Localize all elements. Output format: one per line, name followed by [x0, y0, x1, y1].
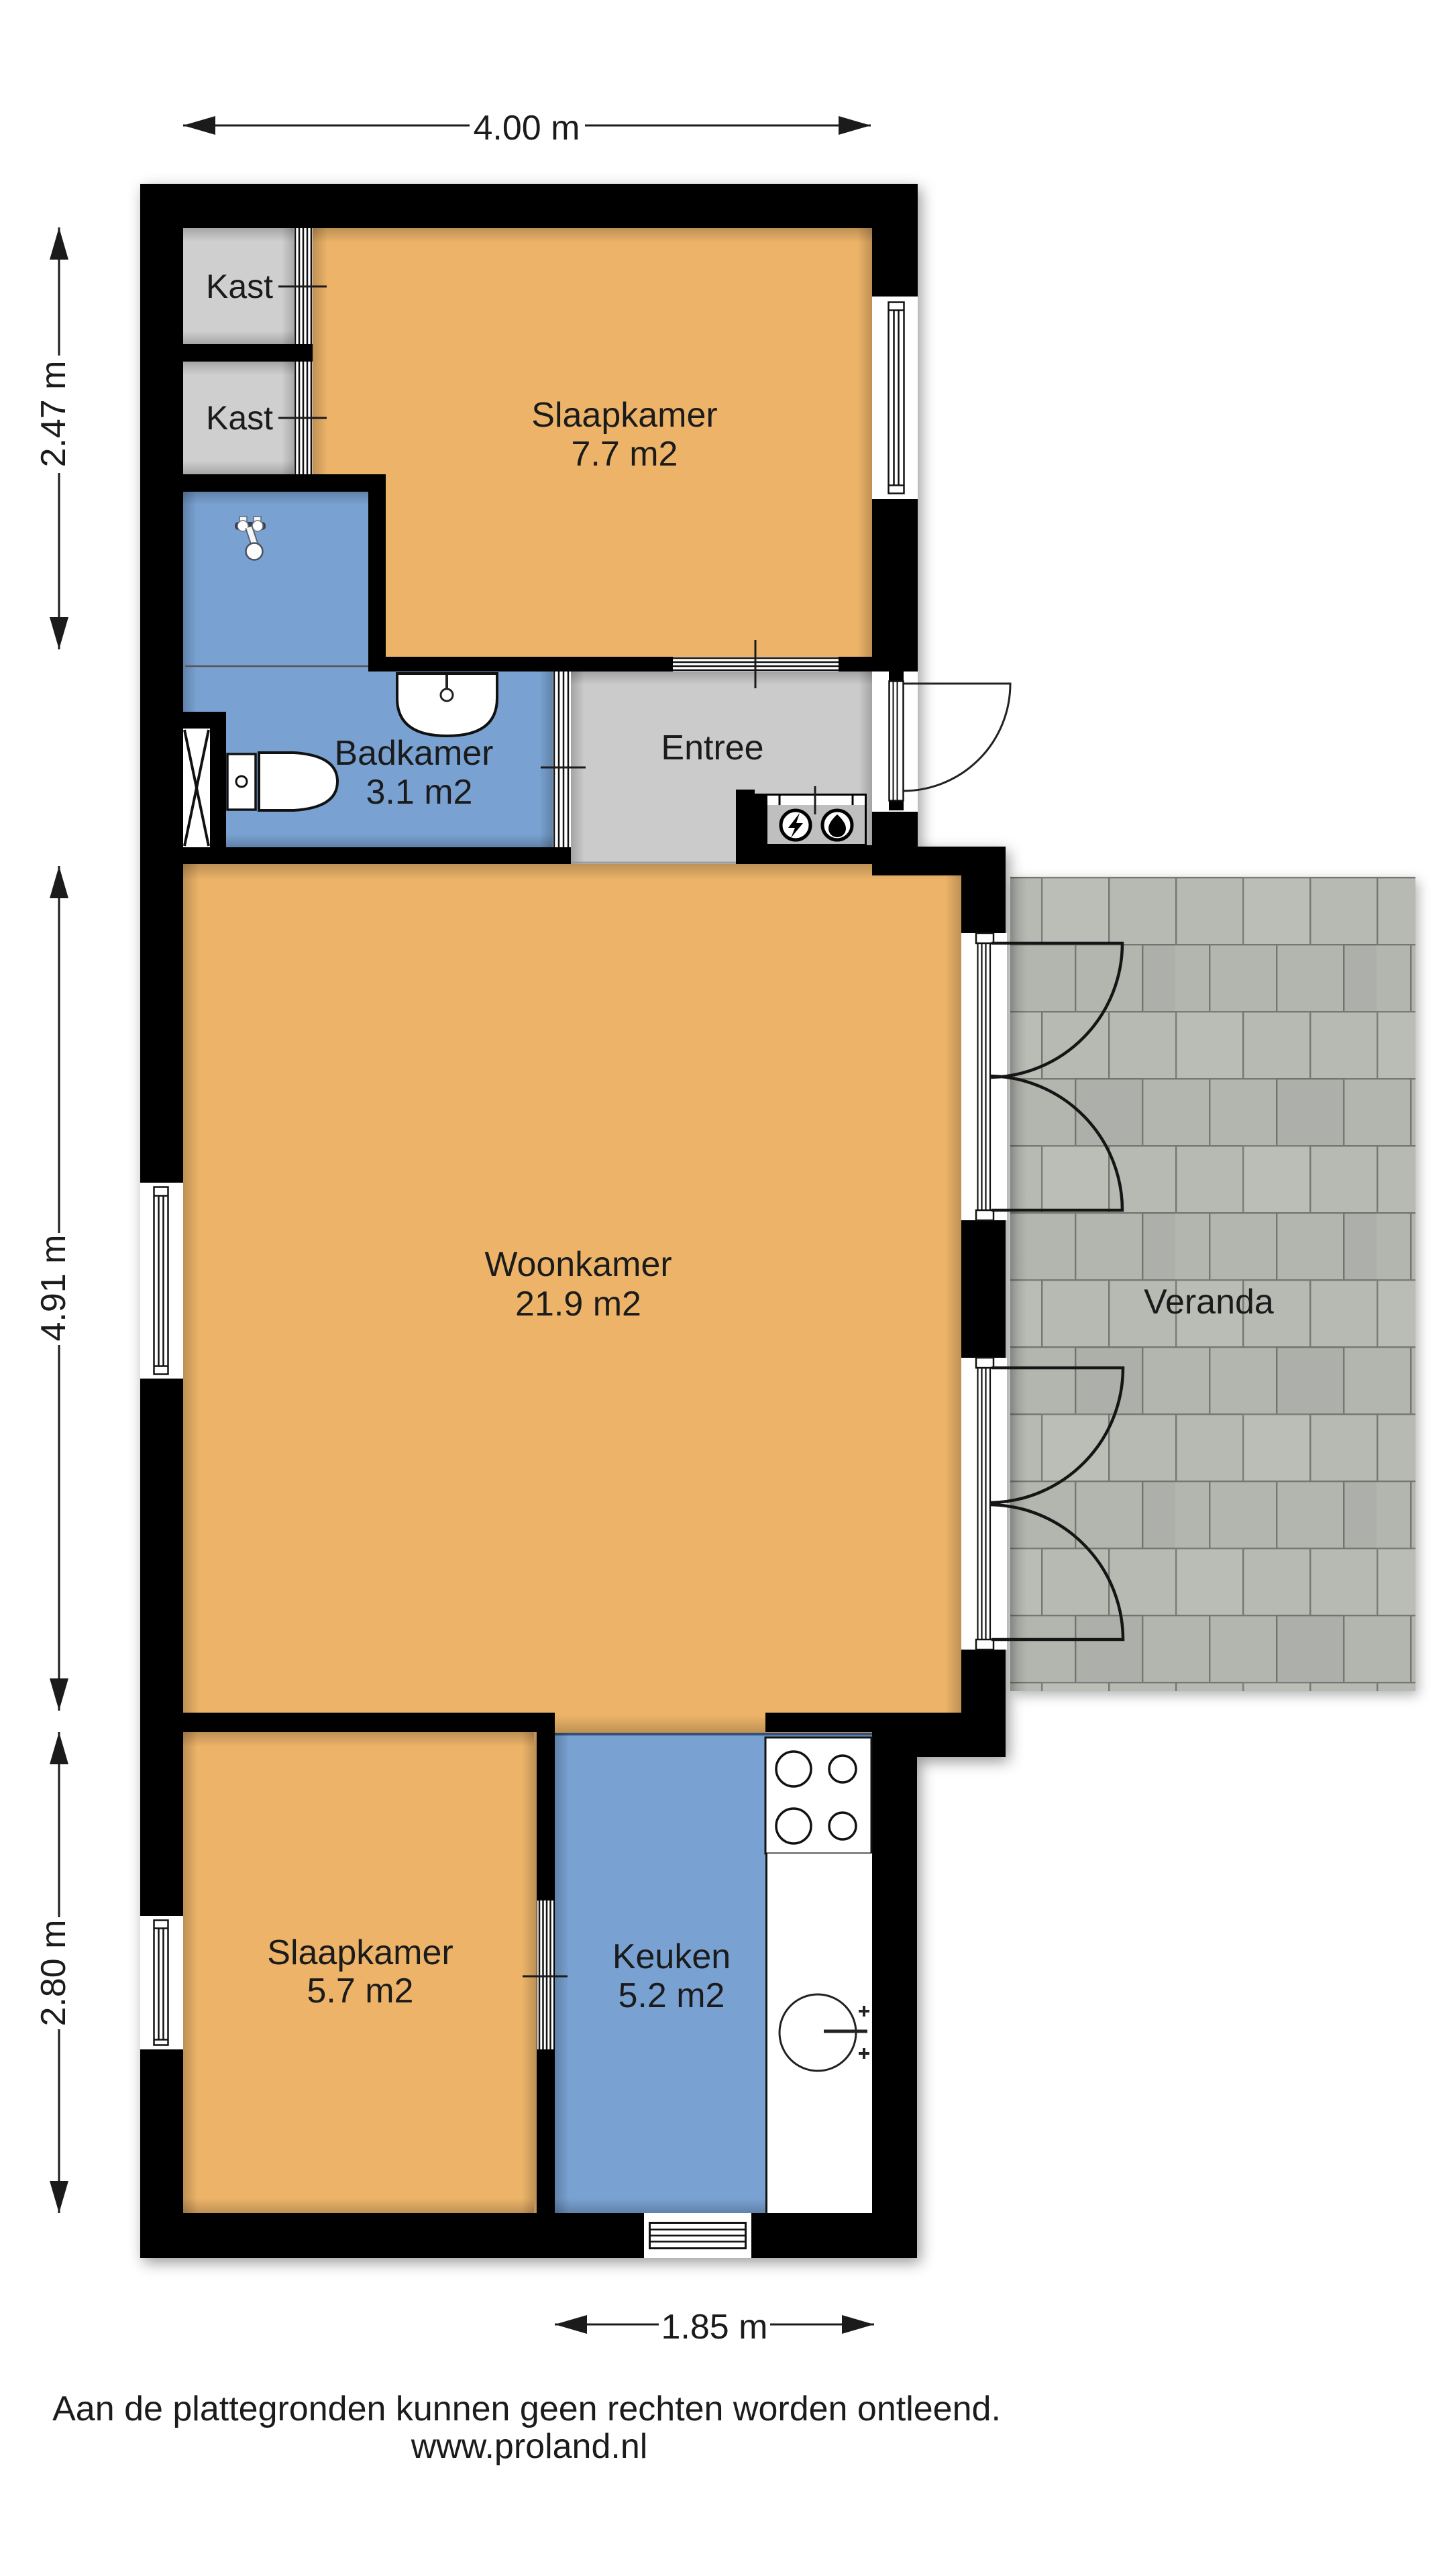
svg-text:5.2 m2: 5.2 m2 — [619, 1976, 725, 2015]
svg-text:Kast: Kast — [206, 399, 273, 437]
svg-text:Keuken: Keuken — [612, 1937, 731, 1976]
svg-text:Aan de plattegronden kunnen ge: Aan de plattegronden kunnen geen rechten… — [52, 2390, 1001, 2428]
svg-text:Entree: Entree — [661, 729, 763, 767]
svg-text:4.00 m: 4.00 m — [474, 109, 580, 148]
svg-text:3.1 m2: 3.1 m2 — [366, 773, 473, 812]
svg-text:2.47 m: 2.47 m — [34, 361, 73, 468]
svg-text:Veranda: Veranda — [1144, 1283, 1274, 1322]
svg-text:5.7 m2: 5.7 m2 — [307, 1972, 414, 2010]
svg-text:Slaapkamer: Slaapkamer — [531, 396, 717, 435]
svg-text:Badkamer: Badkamer — [335, 734, 494, 773]
svg-text:www.proland.nl: www.proland.nl — [411, 2427, 648, 2466]
svg-text:2.80 m: 2.80 m — [34, 1920, 73, 2027]
svg-text:Kast: Kast — [206, 268, 273, 305]
svg-text:Slaapkamer: Slaapkamer — [267, 1933, 453, 1972]
svg-text:1.85 m: 1.85 m — [661, 2308, 768, 2347]
svg-text:4.91 m: 4.91 m — [34, 1235, 73, 1342]
svg-text:7.7 m2: 7.7 m2 — [572, 435, 678, 474]
svg-text:21.9 m2: 21.9 m2 — [515, 1285, 641, 1324]
svg-text:Woonkamer: Woonkamer — [484, 1245, 672, 1284]
